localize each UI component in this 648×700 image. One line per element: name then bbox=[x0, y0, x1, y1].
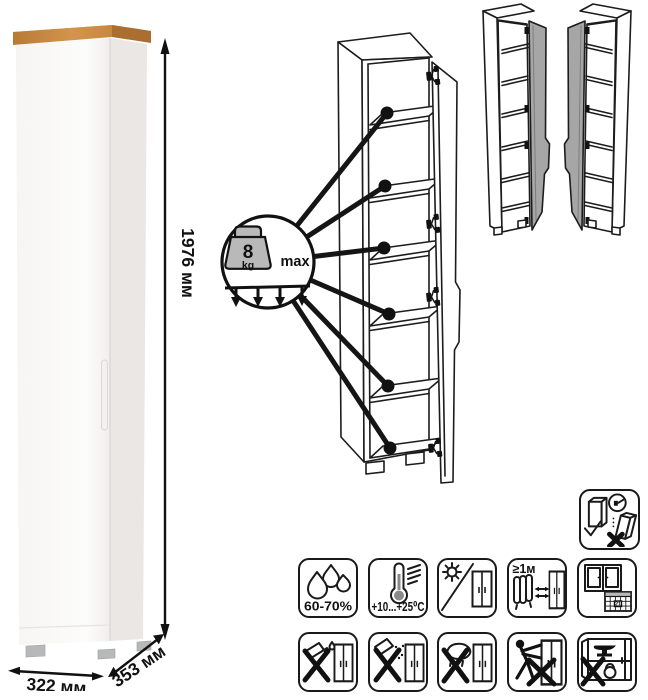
open-door-drawing bbox=[432, 62, 460, 483]
sun-icon bbox=[442, 563, 473, 610]
max-load-badge: 8 kg max bbox=[222, 216, 314, 308]
care-icon-no-heavy-objects bbox=[577, 632, 637, 692]
width-label: 322 мм bbox=[26, 674, 87, 691]
load-max-label: max bbox=[280, 254, 309, 270]
calendar-day-label: 21 bbox=[615, 602, 621, 608]
variant-door-right bbox=[476, 2, 554, 242]
cabinet-photo: 1976 мм 322 мм 353 мм bbox=[6, 16, 201, 691]
wardrobe-icon bbox=[473, 572, 492, 607]
care-icon-no-pushing bbox=[507, 632, 567, 692]
water-drops-icon bbox=[308, 565, 350, 599]
care-icon-no-liquids bbox=[298, 632, 358, 692]
unanchored-cabinet-icon bbox=[609, 512, 636, 546]
calendar-icon: 21 bbox=[605, 592, 631, 611]
radiator-icon bbox=[514, 575, 532, 609]
wardrobe-icon bbox=[334, 645, 352, 682]
wardrobe-icon bbox=[549, 572, 564, 609]
care-icon-ventilation: 21 bbox=[577, 558, 637, 618]
variant-door-left bbox=[560, 2, 638, 242]
care-icon-humidity: 60-70% bbox=[298, 558, 358, 618]
min-distance-label: ≥1м bbox=[513, 562, 536, 576]
height-dimension-arrow bbox=[161, 38, 170, 640]
care-icon-anchor-to-wall bbox=[579, 489, 640, 550]
care-icon-temperature: +10...+25⁰C bbox=[368, 558, 428, 618]
care-icon-heater-distance: ≥1м bbox=[507, 558, 567, 618]
care-icon-avoid-sunlight bbox=[437, 558, 497, 618]
temperature-label: +10...+25⁰C bbox=[372, 599, 425, 614]
kettlebell-icon bbox=[605, 664, 616, 678]
wardrobe-icon bbox=[405, 645, 423, 682]
door-handle-groove bbox=[102, 360, 108, 430]
humidity-label: 60-70% bbox=[304, 599, 352, 614]
product-info-sheet: 1976 мм 322 мм 353 мм bbox=[0, 0, 648, 700]
wardrobe-icon bbox=[473, 645, 491, 682]
height-label: 1976 мм bbox=[178, 228, 198, 298]
load-unit: kg bbox=[242, 260, 254, 272]
cabinet-body bbox=[16, 38, 147, 645]
distance-arrows-icon bbox=[535, 587, 550, 598]
open-window-icon bbox=[585, 565, 621, 591]
shelf-load-diagram: 8 kg max bbox=[198, 12, 475, 498]
care-icon-no-wet-cleaning bbox=[437, 632, 497, 692]
x-mark-icon bbox=[376, 650, 399, 680]
thermometer-icon bbox=[391, 564, 420, 604]
care-icon-no-powders bbox=[368, 632, 428, 692]
